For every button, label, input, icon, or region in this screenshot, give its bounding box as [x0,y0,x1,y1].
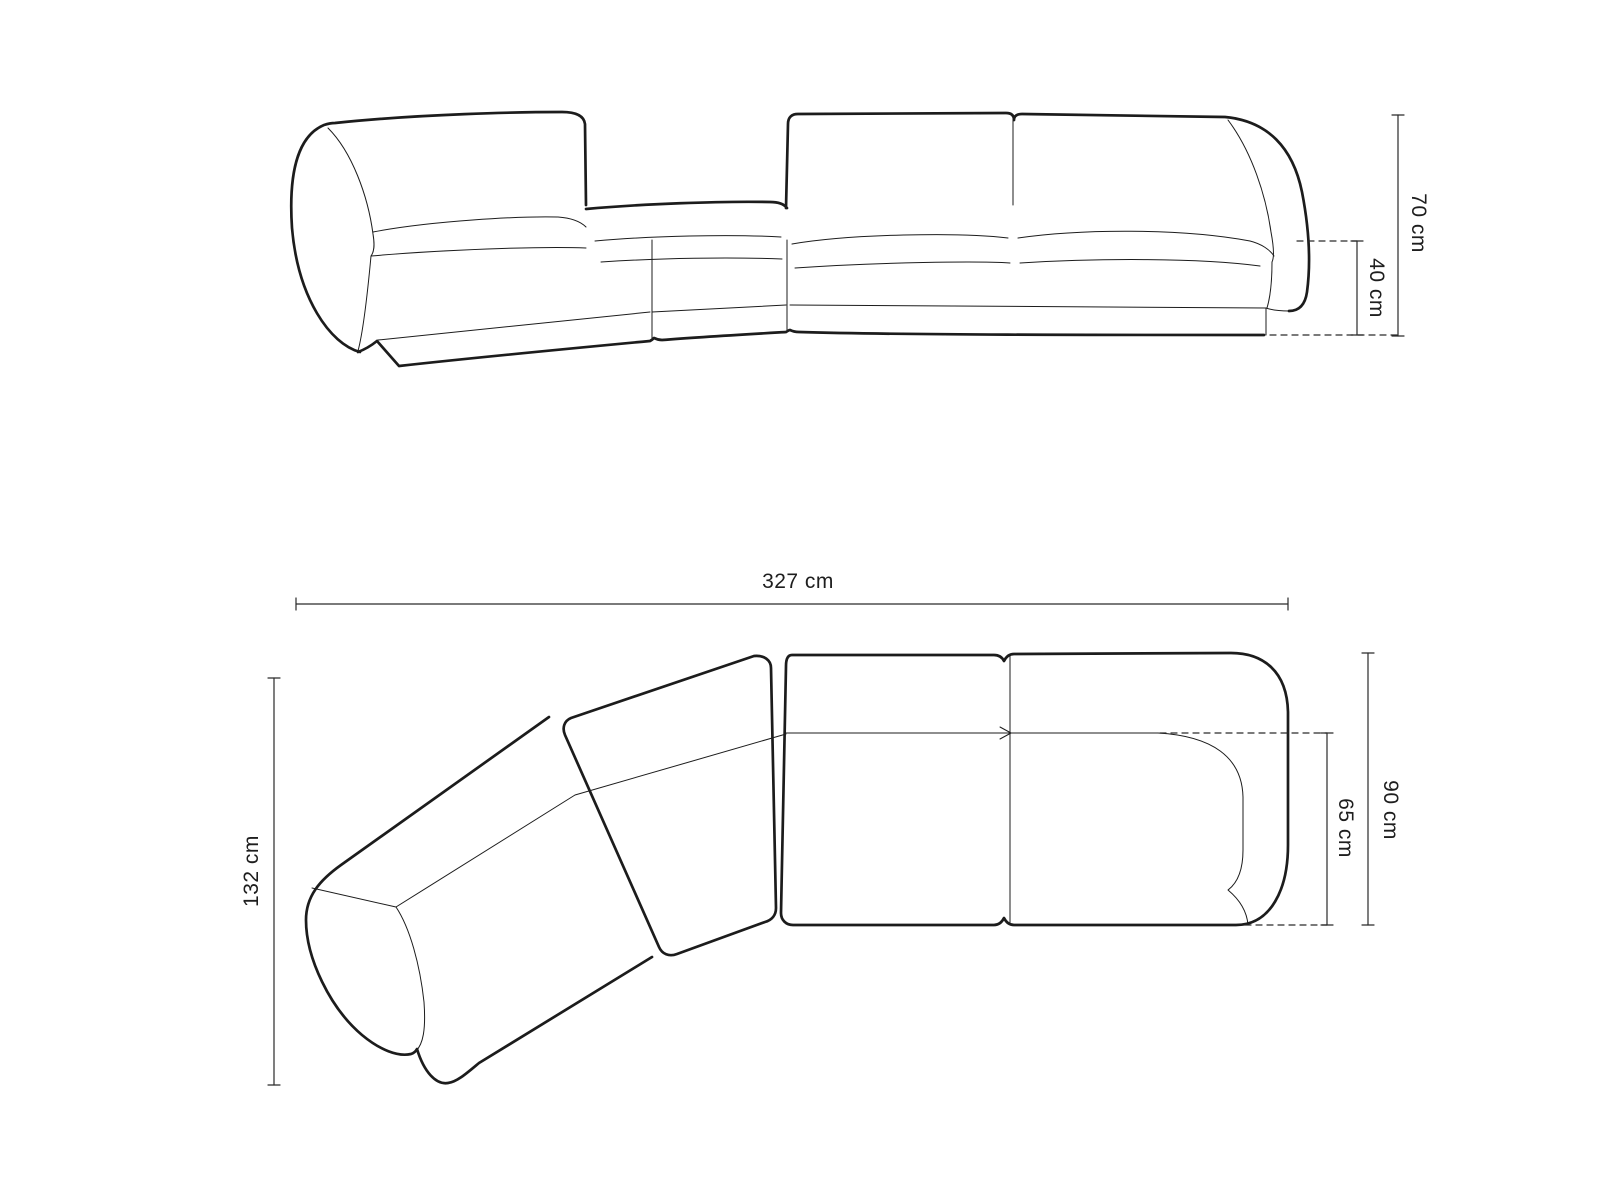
front-elevation-drawing [291,112,1309,366]
dim-label-total-height: 70 cm [1406,193,1430,253]
dim-label-seat-depth: 65 cm [1333,798,1357,858]
top-plan-drawing [306,653,1288,1083]
dim-label-total-depth: 132 cm [240,835,264,907]
dim-label-module-depth: 90 cm [1378,780,1402,840]
sofa-dimension-diagram: 70 cm 40 cm 327 cm 132 cm 90 cm 65 cm [0,0,1600,1200]
dim-label-total-width: 327 cm [762,570,834,594]
top-plan-dimensions [268,598,1374,1085]
sofa-line-drawing [0,0,1600,1200]
dim-label-seat-height: 40 cm [1364,258,1388,318]
